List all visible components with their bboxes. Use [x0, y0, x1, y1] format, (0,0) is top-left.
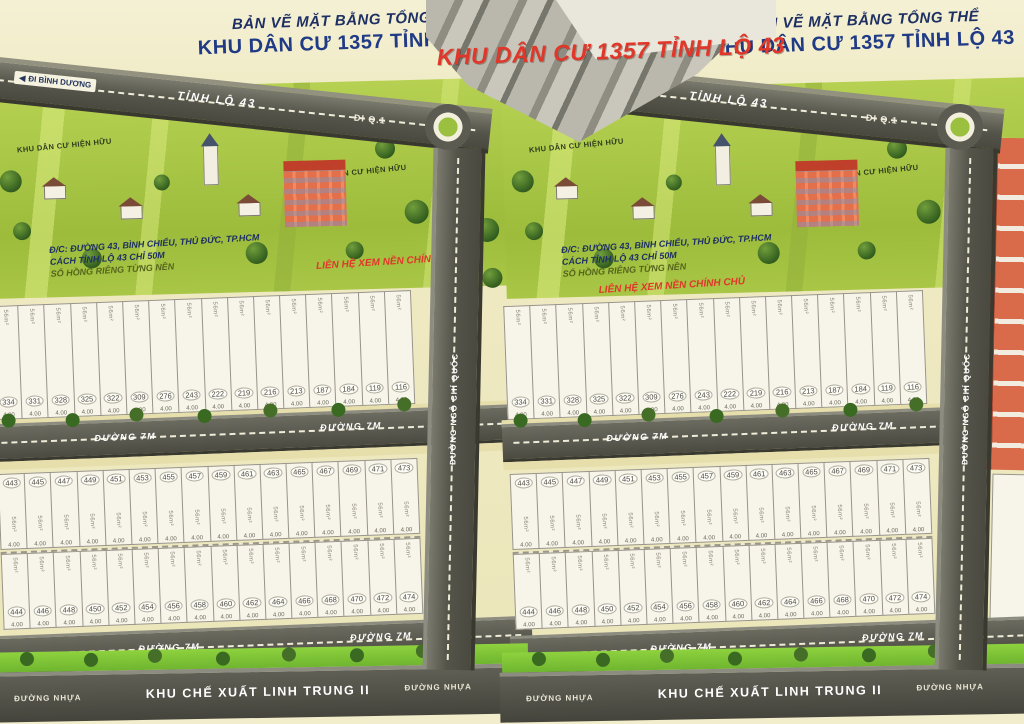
- plot-number: 325: [78, 393, 97, 405]
- plot-band-lower-top-row: 443 56m² 4.00 445 56m² 4.00 447 56m² 4.0…: [510, 458, 933, 550]
- plot-cell: 56m² 458 4.00: [184, 546, 213, 623]
- plot-number: 474: [912, 591, 931, 603]
- tree-row-icon: [532, 652, 546, 666]
- plot-cell: 445 56m² 4.00: [24, 472, 53, 549]
- plot-area-label: 56m²: [653, 512, 660, 528]
- plot-number: 446: [33, 605, 52, 617]
- plot-dimension-label: 4.00: [106, 538, 131, 545]
- tree-icon: [404, 199, 429, 224]
- road-name-label: ĐƯỜNG 7M: [94, 431, 156, 443]
- plot-dimension-label: 4.00: [27, 541, 52, 548]
- plot-cell: 457 56m² 4.00: [693, 466, 722, 543]
- plot-number: 473: [395, 462, 414, 474]
- plot-area-label: 56m²: [574, 515, 581, 531]
- plot-dimension-label: 4.00: [778, 612, 803, 619]
- plot-cell: 56m² 474 4.00: [393, 538, 423, 615]
- plot-area-label: 56m²: [600, 514, 607, 530]
- plot-number: 445: [540, 476, 559, 488]
- plot-number: 448: [571, 604, 590, 616]
- plot-dimension-label: 4.00: [749, 533, 774, 540]
- plot-area-label: 56m²: [290, 298, 297, 314]
- plot-number: 328: [563, 394, 582, 406]
- plot-number: 449: [81, 474, 100, 486]
- plot-area-label: 56m²: [627, 513, 634, 529]
- plot-cell: 457 56m² 4.00: [181, 466, 210, 543]
- plot-number: 331: [537, 395, 556, 407]
- plot-dimension-label: 4.00: [109, 618, 134, 625]
- plot-dimension-label: 4.00: [595, 619, 620, 626]
- plot-cell: 56m² 458 4.00: [696, 546, 725, 623]
- plot-cell: 56m² 472 4.00: [367, 539, 396, 616]
- plot-number: 213: [287, 385, 306, 397]
- plot-dimension-label: 4.00: [54, 540, 79, 547]
- direction-label: ĐI Q.1: [865, 112, 898, 125]
- plot-number: 119: [366, 382, 384, 394]
- plot-area-label: 56m²: [749, 300, 756, 316]
- plot-dimension-label: 4.00: [101, 408, 126, 415]
- plot-area-label: 56m²: [64, 555, 71, 571]
- plot-area-label: 56m²: [916, 542, 923, 558]
- plot-number: 465: [802, 466, 821, 478]
- plot-cell: 56m² 468 4.00: [827, 541, 856, 618]
- plot-dimension-label: 4.00: [909, 607, 934, 614]
- plot-number: 454: [650, 601, 669, 613]
- plot-cell: 455 56m² 4.00: [155, 467, 184, 544]
- plot-dimension-label: 4.00: [292, 611, 317, 618]
- plot-area-label: 56m²: [352, 544, 359, 560]
- plot-dimension-label: 4.00: [49, 410, 74, 417]
- arrow-left-icon: ◀: [19, 73, 26, 83]
- direction-label: ĐI Q.1: [353, 112, 386, 125]
- plot-number: 461: [238, 468, 257, 480]
- plot-cell: 56m² 460 4.00: [210, 545, 239, 622]
- plot-cell: 56m² 470 4.00: [853, 540, 882, 617]
- tree-icon: [482, 268, 503, 289]
- plot-cell: 56m² 454 4.00: [644, 548, 673, 625]
- export-zone-label: KHU CHẾ XUẤT LINH TRUNG II: [590, 682, 950, 702]
- plot-number: 222: [208, 388, 227, 400]
- plot-number: 463: [776, 467, 795, 479]
- plot-area-label: 56m²: [723, 301, 730, 317]
- house-icon: [556, 185, 578, 200]
- plot-number: 216: [261, 386, 280, 398]
- plot-area-label: 56m²: [168, 551, 175, 567]
- plot-number: 448: [59, 604, 78, 616]
- plot-dimension-label: 4.00: [621, 618, 646, 625]
- plot-area-label: 56m²: [90, 554, 97, 570]
- plot-area-label: 56m²: [602, 554, 609, 570]
- plot-area-label: 56m²: [776, 299, 783, 315]
- plot-area-label: 56m²: [906, 294, 913, 310]
- plot-dimension-label: 4.00: [543, 621, 568, 628]
- plot-area-label: 56m²: [394, 294, 401, 310]
- plot-cell: 56m² 444 4.00: [1, 553, 30, 630]
- plot-dimension-label: 4.00: [158, 536, 183, 543]
- plot-area-label: 56m²: [316, 297, 323, 313]
- plot-dimension-label: 4.00: [723, 534, 748, 541]
- plot-cell: 56m² 460 4.00: [722, 545, 751, 622]
- plot-number: 213: [799, 385, 818, 397]
- plot-dimension-label: 4.00: [127, 407, 152, 414]
- plot-cell: 465 56m² 4.00: [798, 462, 827, 539]
- plot-dimension-label: 4.00: [592, 539, 617, 546]
- plot-number: 464: [269, 596, 288, 608]
- plot-cell: 56m² 462 4.00: [236, 544, 265, 621]
- plot-dimension-label: 4.00: [796, 401, 821, 408]
- plot-area-label: 56m²: [888, 503, 895, 519]
- plot-number: 447: [566, 475, 585, 487]
- plot-dimension-label: 4.00: [240, 613, 265, 620]
- plot-area-label: 56m²: [221, 549, 228, 565]
- plot-area-label: 56m²: [680, 551, 687, 567]
- plot-area-label: 56m²: [211, 301, 218, 317]
- plot-number: 444: [7, 606, 26, 618]
- tree-icon: [511, 170, 534, 193]
- plot-cell: 56m² 466 4.00: [289, 542, 318, 619]
- road-ngo-chi-quoc: ĐƯỜNG NGÔ CHÍ QUỐC: [423, 148, 486, 671]
- plot-cell: 56m² 450 4.00: [79, 550, 108, 627]
- plot-cell: 453 56m² 4.00: [128, 468, 157, 545]
- plot-dimension-label: 4.00: [75, 409, 100, 416]
- plot-area-label: 56m²: [619, 305, 626, 321]
- plot-dimension-label: 4.00: [310, 400, 335, 407]
- plot-number: 459: [211, 469, 230, 481]
- plot-area-label: 56m²: [645, 304, 652, 320]
- plot-dimension-label: 4.00: [318, 610, 343, 617]
- tree-icon: [154, 174, 170, 190]
- plot-area-label: 56m²: [890, 543, 897, 559]
- plot-dimension-label: 4.00: [700, 615, 725, 622]
- plot-dimension-label: 4.00: [135, 617, 160, 624]
- plot-area-label: 56m²: [514, 310, 521, 326]
- water-tower-icon: [203, 145, 219, 185]
- plot-area-label: 56m²: [880, 295, 887, 311]
- plot-number: 462: [243, 597, 262, 609]
- map-panel: BẢN VẼ MẶT BẰNG TỔNG THỂ KHU DÂN CƯ 1357…: [0, 0, 512, 724]
- plot-dimension-label: 4.00: [22, 411, 47, 418]
- plot-number: 219: [747, 387, 766, 399]
- road-name-label: ĐƯỜNG NHỰA: [526, 693, 594, 703]
- plot-dimension-label: 4.00: [539, 541, 564, 548]
- plot-area-label: 56m²: [342, 296, 349, 312]
- plot-dimension-label: 4.00: [214, 614, 239, 621]
- plot-area-label: 56m²: [115, 513, 122, 529]
- plot-area-label: 56m²: [2, 310, 9, 326]
- plot-cell: 463 56m² 4.00: [259, 463, 288, 540]
- plot-number: 458: [702, 599, 721, 611]
- road-name-label: ĐƯỜNG 7M: [320, 420, 382, 432]
- tree-icon: [666, 174, 682, 190]
- plot-dimension-label: 4.00: [80, 539, 105, 546]
- plot-area-label: 56m²: [914, 502, 921, 518]
- plot-dimension-label: 4.00: [153, 406, 178, 413]
- plot-number: 471: [368, 463, 387, 475]
- plot-number: 469: [854, 464, 873, 476]
- plot-cell: 449 56m² 4.00: [588, 470, 617, 547]
- plot-cell: 461 56m² 4.00: [233, 464, 262, 541]
- plot-dimension-label: 4.00: [853, 529, 878, 536]
- plot-number: 457: [185, 470, 204, 482]
- plot-area-label: 56m²: [195, 550, 202, 566]
- plot-area-label: 56m²: [810, 506, 817, 522]
- plot-dimension-label: 4.00: [4, 622, 29, 629]
- plot-dimension-label: 4.00: [665, 406, 690, 413]
- plot-number: 325: [590, 393, 609, 405]
- plot-number: 467: [828, 465, 847, 477]
- plot-number: 469: [342, 464, 361, 476]
- plot-area-label: 56m²: [592, 306, 599, 322]
- plot-number: 473: [907, 462, 926, 474]
- plot-dimension-label: 4.00: [341, 529, 366, 536]
- water-tower-icon: [715, 145, 731, 185]
- plot-number: 447: [54, 475, 73, 487]
- plot-cell: 471 56m² 4.00: [364, 459, 393, 536]
- plot-dimension-label: 4.00: [371, 608, 396, 615]
- plot-cell: 469 56m² 4.00: [338, 460, 367, 537]
- plot-band-upper: 56m² 334 4.00 56m² 331 4.00 56m² 328 4.0…: [503, 290, 927, 420]
- plot-dimension-label: 4.00: [569, 620, 594, 627]
- plot-area-label: 56m²: [522, 517, 529, 533]
- plot-number: 187: [313, 384, 332, 396]
- plot-cell: 451 56m² 4.00: [614, 469, 643, 546]
- plot-number: 453: [645, 472, 664, 484]
- plot-area-label: 56m²: [299, 546, 306, 562]
- plot-cell: 56m² 446 4.00: [27, 552, 56, 629]
- plot-number: 452: [624, 602, 643, 614]
- plot-dimension-label: 4.00: [211, 534, 236, 541]
- plot-cell: 56m² 468 4.00: [315, 541, 344, 618]
- plot-dimension-label: 4.00: [389, 397, 414, 404]
- plot-dimension-label: 4.00: [534, 411, 559, 418]
- plot-number: 460: [216, 598, 235, 610]
- plot-number: 464: [781, 596, 800, 608]
- plot-area-label: 56m²: [54, 308, 61, 324]
- plot-number: 463: [264, 467, 283, 479]
- plot-dimension-label: 4.00: [83, 619, 108, 626]
- road-duong-nhua: ĐƯỜNG NHỰA KHU CHẾ XUẤT LINH TRUNG II ĐƯ…: [500, 663, 1024, 722]
- plot-cell: 447 56m² 4.00: [50, 471, 79, 548]
- plot-number: 216: [773, 386, 792, 398]
- plot-cell: 56m² 456 4.00: [158, 547, 187, 624]
- plot-dimension-label: 4.00: [289, 531, 314, 538]
- plot-cell: 447 56m² 4.00: [562, 471, 591, 548]
- tree-icon: [0, 170, 22, 193]
- plot-cell: 469 56m² 4.00: [850, 460, 879, 537]
- plot-number: 461: [750, 468, 769, 480]
- plot-dimension-label: 4.00: [397, 607, 422, 614]
- plot-dimension-label: 4.00: [237, 533, 262, 540]
- plot-number: 449: [593, 474, 612, 486]
- direction-sign-label: ĐI BÌNH DƯƠNG: [28, 74, 92, 90]
- plot-cell: 443 56m² 4.00: [510, 473, 539, 550]
- plot-number: 462: [755, 597, 774, 609]
- plot-band-lower-bottom-row: 56m² 444 4.00 56m² 446 4.00 56m² 448 4.0…: [513, 536, 936, 630]
- plot-dimension-label: 4.00: [827, 530, 852, 537]
- plot-area-label: 56m²: [654, 552, 661, 568]
- tree-row-icon: [20, 652, 34, 666]
- plot-number: 222: [720, 388, 739, 400]
- house-icon: [750, 202, 772, 217]
- plot-dimension-label: 4.00: [258, 402, 283, 409]
- plot-area-label: 56m²: [245, 508, 252, 524]
- plot-area-label: 56m²: [837, 545, 844, 561]
- plot-dimension-label: 4.00: [647, 617, 672, 624]
- plot-dimension-label: 4.00: [744, 403, 769, 410]
- plot-area-label: 56m²: [325, 545, 332, 561]
- plot-cell: 467 56m² 4.00: [824, 461, 853, 538]
- plot-number: 455: [159, 471, 178, 483]
- plot-area-label: 56m²: [88, 514, 95, 530]
- plot-area-label: 56m²: [11, 557, 18, 573]
- plot-cell: 56m² 470 4.00: [341, 540, 370, 617]
- plot-area-label: 56m²: [566, 308, 573, 324]
- plot-area-label: 56m²: [550, 556, 557, 572]
- plot-area-label: 56m²: [854, 296, 861, 312]
- plot-area-label: 56m²: [697, 302, 704, 318]
- plot-area-label: 56m²: [116, 553, 123, 569]
- plot-dimension-label: 4.00: [718, 404, 743, 411]
- plot-area-label: 56m²: [167, 511, 174, 527]
- road-name-label: ĐƯỜNG NGÔ CHÍ QUỐC: [960, 353, 971, 465]
- plot-number: 457: [697, 470, 716, 482]
- plot-dimension-label: 4.00: [875, 398, 900, 405]
- plot-cell: 453 56m² 4.00: [640, 468, 669, 545]
- plot-number: 454: [138, 601, 157, 613]
- plot-number: 459: [723, 469, 742, 481]
- plot-area-label: 56m²: [142, 552, 149, 568]
- plot-number: 466: [807, 595, 826, 607]
- plot-area-label: 56m²: [548, 516, 555, 532]
- plot-cell: 56m² 448 4.00: [53, 551, 82, 628]
- plot-number: 243: [182, 389, 201, 401]
- plot-number: 443: [2, 477, 21, 489]
- plot-dimension-label: 4.00: [804, 611, 829, 618]
- plot-number: 453: [133, 472, 152, 484]
- plot-number: 276: [668, 390, 687, 402]
- plot-cell: 56m² 472 4.00: [879, 539, 908, 616]
- road-ngo-chi-quoc: ĐƯỜNG NGÔ CHÍ QUỐC: [935, 148, 998, 671]
- house-icon: [238, 202, 260, 217]
- plot-cell: 473 56m² 4.00: [902, 458, 932, 535]
- plot-area-label: 56m²: [141, 512, 148, 528]
- plot-number: 466: [295, 595, 314, 607]
- plot-number: 451: [619, 473, 638, 485]
- plot-number: 450: [86, 603, 105, 615]
- plot-area-label: 56m²: [62, 515, 69, 531]
- plot-number: 471: [880, 463, 899, 475]
- plot-cell: 455 56m² 4.00: [667, 467, 696, 544]
- plot-dimension-label: 4.00: [801, 531, 826, 538]
- road-name-label: TỈNH LỘ 43: [177, 90, 257, 110]
- plot-number: 455: [671, 471, 690, 483]
- plot-cell: 461 56m² 4.00: [745, 464, 774, 541]
- plot-area-label: 56m²: [540, 309, 547, 325]
- plot-area-label: 56m²: [80, 306, 87, 322]
- plot-dimension-label: 4.00: [857, 609, 882, 616]
- plot-dimension-label: 4.00: [561, 410, 586, 417]
- plot-area-label: 56m²: [264, 299, 271, 315]
- plot-number: 444: [519, 606, 538, 618]
- plot-area-label: 56m²: [159, 303, 166, 319]
- existing-area-label: KHU DÂN CƯ HIỆN HỮU: [17, 136, 112, 154]
- plot-cell: 56m² 466 4.00: [801, 542, 830, 619]
- plot-area-label: 56m²: [38, 556, 45, 572]
- plot-dimension-label: 4.00: [775, 532, 800, 539]
- plot-cell: 463 56m² 4.00: [771, 463, 800, 540]
- plot-cell: 56m² 450 4.00: [591, 550, 620, 627]
- plot-number: 467: [316, 465, 335, 477]
- contact-label: LIÊN HỆ XEM NỀN CHÍNH CHỦ: [598, 276, 745, 296]
- road-name-label: ĐƯỜNG NHỰA: [14, 693, 82, 703]
- plot-cell: 443 56m² 4.00: [0, 473, 27, 550]
- plot-cell: 56m² 448 4.00: [565, 551, 594, 628]
- plot-area-label: 56m²: [36, 516, 43, 532]
- plot-dimension-label: 4.00: [336, 399, 361, 406]
- plot-number: 456: [676, 600, 695, 612]
- plot-cell: 56m² 452 4.00: [105, 549, 134, 626]
- road-name-label: ĐƯỜNG 7M: [832, 420, 894, 432]
- plot-dimension-label: 4.00: [266, 612, 291, 619]
- plot-number: 468: [833, 594, 852, 606]
- apartment-building-icon: [795, 160, 859, 228]
- plot-dimension-label: 4.00: [184, 535, 209, 542]
- plot-number: 450: [598, 603, 617, 615]
- plot-dimension-label: 4.00: [513, 542, 538, 549]
- plot-number: 334: [511, 396, 530, 408]
- plot-area-label: 56m²: [523, 557, 530, 573]
- plot-dimension-label: 4.00: [31, 621, 56, 628]
- plot-dimension-label: 4.00: [363, 398, 388, 405]
- plot-cell: 465 56m² 4.00: [286, 462, 315, 539]
- plot-dimension-label: 4.00: [644, 537, 669, 544]
- address-block: Đ/C: ĐƯỜNG 43, BÌNH CHIỂU, THỦ ĐỨC, TP.H…: [561, 228, 823, 280]
- plot-number: 472: [885, 592, 904, 604]
- plot-number: 465: [290, 466, 309, 478]
- plot-area-label: 56m²: [679, 511, 686, 527]
- plot-dimension-label: 4.00: [132, 537, 157, 544]
- plot-area-label: 56m²: [219, 509, 226, 525]
- plot-number: 446: [545, 605, 564, 617]
- plot-number: 331: [25, 395, 44, 407]
- plot-number: 456: [164, 600, 183, 612]
- plot-dimension-label: 4.00: [639, 407, 664, 414]
- tree-icon: [345, 241, 363, 259]
- export-zone-label: KHU CHẾ XUẤT LINH TRUNG II: [78, 682, 438, 702]
- plot-dimension-label: 4.00: [188, 615, 213, 622]
- plot-dimension-label: 4.00: [206, 404, 231, 411]
- plot-area-label: 56m²: [376, 503, 383, 519]
- subdivision-map: BẢN VẼ MẶT BẰNG TỔNG THỂ KHU DÂN CƯ 1357…: [0, 0, 1024, 724]
- plot-area-label: 56m²: [28, 309, 35, 325]
- plot-cell: 56m² 116 4.00: [896, 290, 928, 405]
- plot-band-lower-bottom-row: 56m² 444 4.00 56m² 446 4.00 56m² 448 4.0…: [1, 536, 424, 630]
- plot-area-label: 56m²: [731, 509, 738, 525]
- plot-area-label: 56m²: [628, 553, 635, 569]
- plot-number: 243: [694, 389, 713, 401]
- plot-number: 184: [339, 383, 358, 395]
- plot-dimension-label: 4.00: [613, 408, 638, 415]
- plot-dimension-label: 4.00: [315, 530, 340, 537]
- plot-area-label: 56m²: [864, 544, 871, 560]
- plot-area-label: 56m²: [785, 547, 792, 563]
- address-block: Đ/C: ĐƯỜNG 43, BÌNH CHIỂU, THỦ ĐỨC, TP.H…: [49, 228, 311, 280]
- house-icon: [632, 205, 654, 220]
- plot-area-label: 56m²: [237, 300, 244, 316]
- plot-number: 443: [514, 477, 533, 489]
- roundabout-icon: [937, 104, 983, 150]
- plot-cell: 451 56m² 4.00: [102, 469, 131, 546]
- plot-cell: 56m² 446 4.00: [539, 552, 568, 629]
